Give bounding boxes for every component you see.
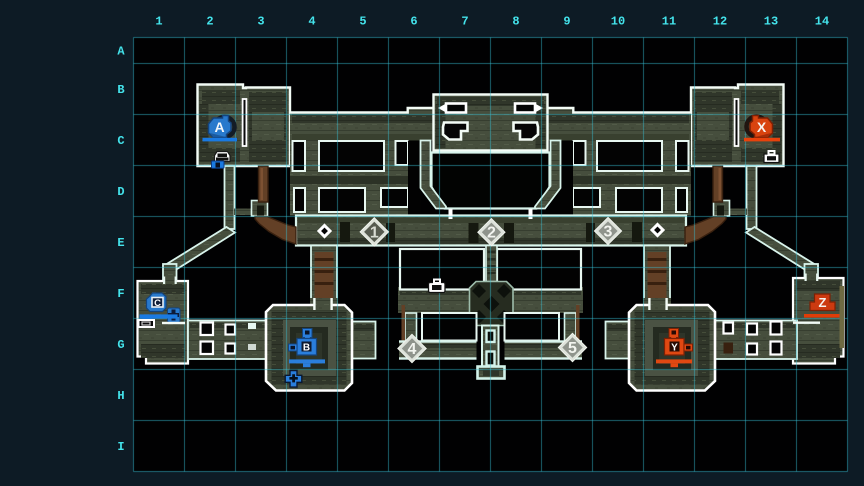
svg-text:I: I [117, 440, 124, 454]
svg-text:6: 6 [410, 15, 417, 29]
svg-text:2: 2 [487, 225, 496, 242]
svg-text:5: 5 [359, 15, 366, 29]
svg-text:H: H [117, 389, 124, 403]
svg-text:4: 4 [408, 341, 417, 358]
svg-text:B: B [117, 83, 124, 97]
svg-text:12: 12 [713, 15, 727, 29]
svg-text:F: F [117, 287, 124, 301]
svg-text:4: 4 [308, 15, 315, 29]
svg-text:E: E [117, 236, 124, 250]
svg-text:13: 13 [764, 15, 778, 29]
svg-text:7: 7 [461, 15, 468, 29]
svg-text:5: 5 [568, 340, 577, 357]
svg-text:Z: Z [819, 295, 827, 310]
svg-text:B: B [303, 343, 310, 354]
svg-text:C: C [117, 134, 124, 148]
svg-text:1: 1 [370, 224, 379, 241]
svg-text:10: 10 [611, 15, 625, 29]
svg-text:14: 14 [815, 15, 829, 29]
svg-text:3: 3 [257, 15, 264, 29]
svg-text:A: A [117, 45, 125, 59]
svg-text:D: D [117, 185, 124, 199]
svg-text:Y: Y [671, 343, 678, 354]
svg-text:X: X [757, 119, 767, 135]
svg-text:1: 1 [155, 15, 162, 29]
svg-text:11: 11 [662, 15, 676, 29]
svg-text:A: A [214, 119, 224, 135]
svg-text:2: 2 [206, 15, 213, 29]
svg-text:8: 8 [512, 15, 519, 29]
svg-text:C: C [154, 298, 161, 309]
svg-text:3: 3 [604, 224, 613, 241]
svg-text:9: 9 [563, 15, 570, 29]
svg-text:G: G [117, 338, 124, 352]
